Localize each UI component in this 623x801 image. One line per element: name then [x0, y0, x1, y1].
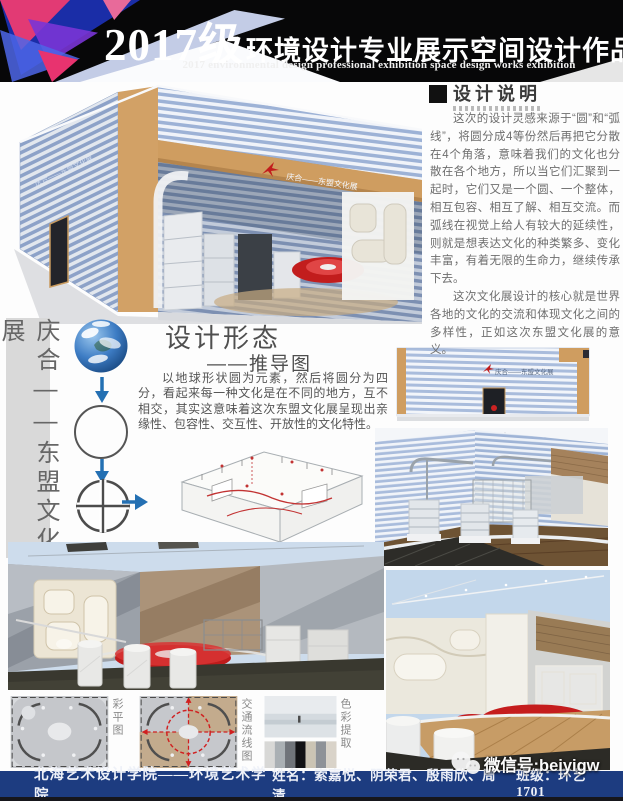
arrow-down-icon — [95, 377, 109, 403]
header-banner: 2017级 环境设计专业展示空间设计作品展 2017 environmental… — [0, 0, 623, 82]
square-bullet-icon — [429, 85, 447, 103]
note-paragraph-2: 这次文化展设计的核心就是世界各地的文化的交流和体现文化之间的多样性，正如这次东盟… — [430, 289, 620, 360]
side-banner-text: 庆合——东盟文化展 — [0, 318, 63, 558]
note-paragraph-1: 这次的设计灵感来源于“圆”和“弧线”，将圆分成4等份然后再把它分散在4个角落，意… — [430, 111, 620, 289]
thumbnail-label: 交通流线图 — [240, 698, 252, 768]
circulation-plan-thumbnail — [139, 696, 238, 768]
design-note-heading: 设计说明 — [429, 85, 541, 111]
thumbnail-label: 色彩提取 — [339, 698, 351, 768]
white-alcove — [34, 580, 116, 658]
poster: 2017级 环境设计专业展示空间设计作品展 2017 environmental… — [0, 0, 623, 801]
watermark-text: 微信号:beiyigw — [484, 752, 600, 776]
front-door — [483, 388, 505, 416]
circle-shape — [74, 405, 128, 459]
watermark: 微信号:beiyigw — [449, 751, 600, 777]
footer-edge — [0, 797, 623, 801]
wireframe-axon-drawing — [152, 446, 385, 546]
side-banner: 庆合——东盟文化展 — [6, 318, 50, 558]
interior-detail-render — [386, 570, 610, 770]
interior-wide-render — [8, 542, 384, 690]
side-door — [50, 216, 68, 287]
main-building-render: 庆合——东盟文化展 庆合——东盟文化展 — [6, 84, 426, 324]
wechat-icon — [449, 751, 481, 777]
design-note-title: 设计说明 — [453, 85, 541, 103]
arrow-right-icon — [122, 494, 148, 510]
thumbnail-label: 彩平图 — [111, 698, 123, 768]
interior-corner-render — [375, 428, 608, 566]
color-plan-thumbnail — [10, 696, 109, 768]
design-note-body: 这次的设计灵感来源于“圆”和“弧线”，将圆分成4等份然后再把它分散在4个角落，意… — [430, 111, 620, 360]
front-logo-text: 庆合——东盟文化展 — [495, 367, 554, 376]
earth-image — [74, 319, 128, 373]
design-form-paragraph: 以地球形状圆为元素，然后将圆分为四分，看起来每一种文化是在不同的地方，互不相交，… — [138, 371, 388, 433]
footer-school: 北海艺术设计学院——环境艺术学院 — [34, 763, 272, 801]
poster-subtitle-en: 2017 environmental design professional e… — [148, 59, 610, 71]
color-extraction-thumbnail — [264, 696, 337, 768]
